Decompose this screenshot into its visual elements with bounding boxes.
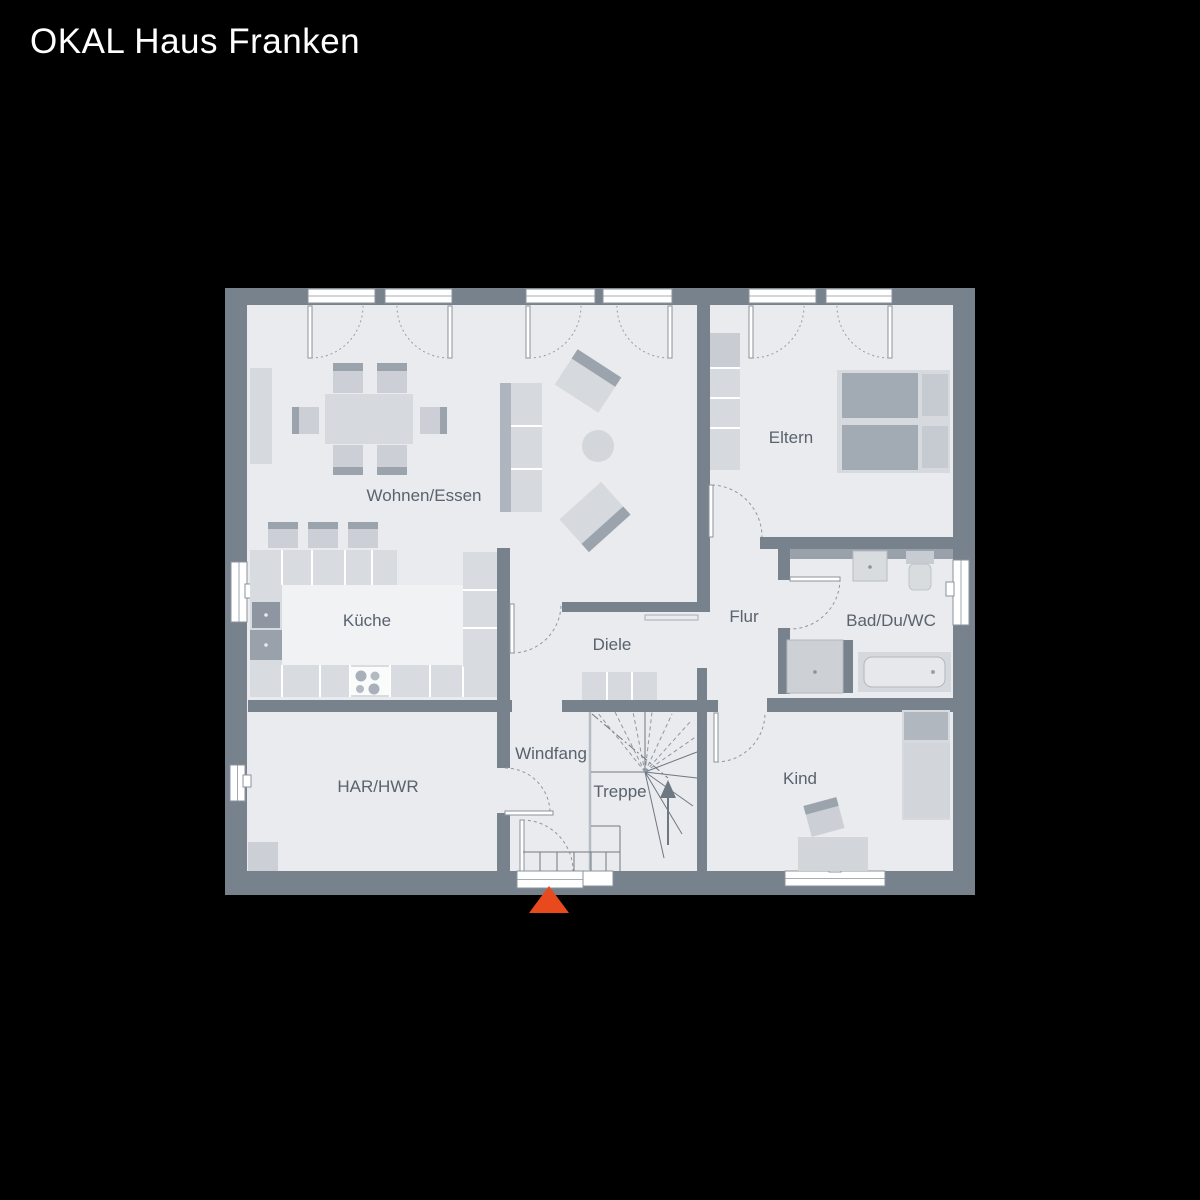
sideboard — [250, 368, 272, 464]
double-bed — [837, 370, 950, 473]
kid-bed — [902, 710, 950, 820]
room-label-eltern: Eltern — [769, 428, 813, 447]
coffee-table — [582, 430, 614, 462]
desk — [798, 837, 868, 871]
room-label-bad-du-wc: Bad/Du/WC — [846, 611, 936, 630]
room-label-treppe: Treppe — [593, 782, 646, 801]
room-label-diele: Diele — [593, 635, 632, 654]
room-label-kind: Kind — [783, 769, 817, 788]
room-label-har-hwr: HAR/HWR — [337, 777, 418, 796]
bathtub-icon — [858, 652, 951, 692]
room-label-flur: Flur — [729, 607, 759, 626]
floor-plan: Wohnen/Essen Eltern Küche Flur Bad/Du/WC… — [0, 0, 1200, 1200]
wardrobe — [710, 333, 740, 470]
toilet-icon — [906, 551, 934, 590]
room-label-wohnen-essen: Wohnen/Essen — [367, 486, 482, 505]
page: OKAL Haus Franken — [0, 0, 1200, 1200]
room-label-windfang: Windfang — [515, 744, 587, 763]
sofa — [500, 383, 542, 512]
washbasin-icon — [853, 551, 887, 581]
shower-icon — [787, 640, 843, 693]
bar-stools — [268, 522, 378, 548]
room-label-kueche: Küche — [343, 611, 391, 630]
utility-unit — [248, 842, 278, 871]
hall-cabinet — [582, 672, 657, 700]
